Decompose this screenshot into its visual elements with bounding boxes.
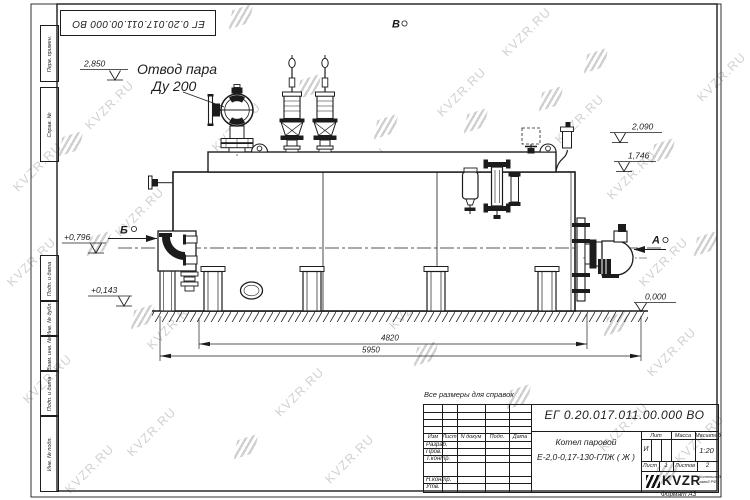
margin-label: Справ. №	[47, 112, 53, 137]
elevation-1746-label: 1,746	[628, 151, 650, 161]
tb-product-name-line1: Котел паровой	[531, 437, 641, 447]
tb-row-nkontr: Н.контр.	[426, 477, 451, 483]
tb-header-ndoc: N докум	[457, 434, 485, 440]
margin-box-inv-dubl: Инв. № дубл.	[40, 300, 59, 337]
burner	[583, 224, 648, 278]
margin-box-sprav-no: Справ. №	[40, 87, 59, 162]
safety-valve	[280, 55, 305, 152]
margin-label: Подп. и дата	[47, 376, 53, 410]
elevation-2850-label: 2,850	[83, 59, 106, 69]
margin-box-podp-data-2: Подп. и дата	[40, 370, 59, 417]
kvzr-logo-subtext-line2: завод РФ	[699, 480, 721, 485]
margin-box-podp-data-1: Подп. и дата	[40, 255, 59, 302]
format-label: Формат А3	[640, 491, 717, 498]
view-a-label: А	[651, 235, 660, 247]
safety-valve	[313, 55, 338, 152]
margin-label: Инв. № дубл.	[47, 302, 53, 336]
tb-listov-value: 2	[697, 463, 718, 469]
view-b-label: Б	[120, 225, 128, 237]
kvzr-logo-hatch-icon	[646, 475, 660, 488]
drawing-sheet: KVZR.RU KVZR.RU KVZR.RU KVZR.RU KVZR.RU …	[0, 0, 750, 500]
margin-label: Перв. примен.	[47, 35, 53, 72]
steam-outlet-label-line1: Отвод пара	[137, 61, 217, 77]
dim-4820-label: 4820	[381, 334, 399, 343]
tb-masshtab-value: 1:20	[695, 446, 718, 455]
dim-5950-label: 5950	[362, 346, 380, 355]
leader-line	[183, 92, 224, 107]
drum-top-valve	[522, 128, 540, 154]
rear-pipe	[556, 122, 574, 171]
steam-outlet-label-line2: Ду 200	[150, 78, 196, 94]
tb-list-label: Лист	[641, 463, 659, 469]
kvzr-logo-text: KVZR	[662, 473, 701, 488]
view-v-circle	[402, 21, 407, 26]
tb-header-list: Лист	[442, 434, 457, 440]
tb-product-name-line2: Е-2,0-0,17-130-ГЛЖ ( Ж )	[531, 452, 641, 462]
tb-header-izm: Изм	[424, 434, 442, 440]
margin-label: Подп. и дата	[47, 261, 53, 295]
tb-massa-label: Масса	[671, 433, 695, 439]
handwheel	[209, 96, 213, 125]
view-v-label: В	[392, 19, 400, 31]
title-block: ЕГ 0.20.017.011.00.000 ВО Изм Лист N док…	[423, 404, 719, 493]
margin-box-vzam-inv: Взам. инв. №	[40, 335, 59, 372]
elevation-0000-label: 0,000	[645, 292, 667, 302]
lifting-lug	[252, 144, 268, 152]
margin-label: Инв. № подл.	[47, 436, 53, 470]
tb-row-razrab: Разраб.	[426, 442, 448, 448]
tb-masshtab-label: Масштаб	[695, 433, 718, 439]
tb-lit-label: Лит	[641, 433, 671, 439]
kvzr-logo: KVZR Котельный завод РФ	[641, 471, 718, 492]
tb-header-data: Дата	[509, 434, 531, 440]
elevation-0143-label: +0,143	[91, 285, 118, 295]
elevation-0796-label: +0,796	[64, 232, 91, 242]
title-block-doc-number: ЕГ 0.20.017.011.00.000 ВО	[531, 408, 718, 422]
margin-box-perv-primen: Перв. примен.	[40, 25, 59, 82]
elevation-2090-label: 2,090	[631, 122, 654, 132]
tb-header-podp: Подп.	[485, 434, 509, 440]
top-inverted-stamp: ЕГ 0.20.017.011.00.000 ВО	[60, 10, 216, 36]
tb-listov-label: Листов	[673, 463, 697, 469]
tb-lit-value: И	[641, 446, 651, 453]
tb-row-prov: Пров.	[426, 449, 442, 455]
tb-list-value: 1	[659, 463, 673, 469]
steam-outlet-valve	[208, 84, 254, 156]
dimension-5950	[160, 316, 641, 361]
margin-box-inv-podl: Инв. № подл.	[40, 415, 59, 492]
ground-hatching	[152, 311, 648, 322]
top-stamp-doc-number: ЕГ 0.20.017.011.00.000 ВО	[72, 18, 205, 29]
lifting-lug	[540, 144, 556, 152]
kvzr-logo-subtext: Котельный завод РФ	[699, 475, 721, 484]
tb-row-tkontr: Т.контр.	[426, 456, 450, 462]
tb-row-utv: Утв.	[426, 484, 440, 490]
view-arrow-b	[108, 226, 157, 242]
left-drain-valve	[149, 176, 174, 189]
margin-label: Взам. инв. №	[47, 336, 53, 370]
reference-note: Все размеры для справок	[424, 390, 514, 399]
